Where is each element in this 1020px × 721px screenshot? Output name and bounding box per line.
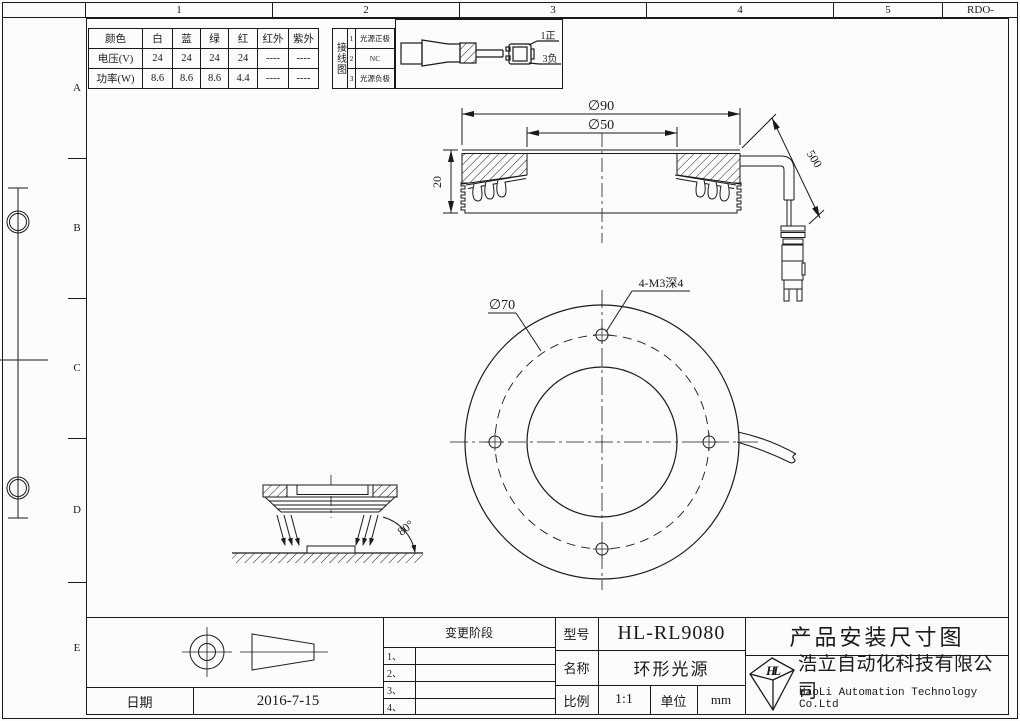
top-view: ∅70 4-M3深4 [440,270,820,600]
projection-symbol [180,626,330,678]
zone-top-2: 2 [273,2,460,17]
ring-body-side [263,485,397,512]
heatsink-fin [720,184,729,201]
connector-knurl [460,43,476,63]
company-name-en: HaoLi Automation Technology Co.Ltd [799,691,1010,707]
spec-value: ---- [289,69,319,89]
spec-col-red: 红 [229,29,258,49]
cable-run [740,156,794,226]
binding-marks [0,180,60,525]
mount-hole [700,433,718,451]
leader-mount-holes [606,291,690,332]
zone-tick [68,158,86,159]
dim-beam-angle: 80° [395,517,417,538]
change-stage-header: 变更阶段 [383,617,555,647]
target-object [307,546,355,553]
zone-tick [68,298,86,299]
spec-col-blue: 蓝 [173,29,201,49]
zone-top-blank [2,2,86,17]
ring-body-section [461,150,741,213]
wiring-pin-row: 2 NC [348,49,394,69]
model-label: 型号 [555,617,598,650]
dim-cable-length: 500 [804,148,825,171]
spec-header-color: 颜色 [89,29,143,49]
name-label: 名称 [555,650,598,685]
side-view: 80° [225,455,435,575]
connector-flange [401,43,422,64]
zone-left-B: B [69,220,85,236]
logo-monogram: HL [765,663,781,678]
date-label: 日期 [86,687,193,715]
wiring-pin-row: 1 光源正极 [348,29,394,49]
table-row: 功率(W) 8.6 8.6 8.6 4.4 ---- ---- [89,69,319,89]
drawing-sheet: 1 2 3 4 5 RDO- A B C D E 颜色 白 蓝 绿 红 红 [0,0,1020,721]
wiring-box: 接线图 1 光源正极 2 NC 3 光源负极 [332,28,395,89]
zone-left-E: E [69,640,85,656]
light-rays [277,515,378,545]
zone-top-3: 3 [460,2,647,17]
dim-bolt-circle: ∅70 [489,298,515,313]
company-logo: HL [746,656,798,713]
connector-drawing: 1正 3负 [396,20,562,88]
pin-label: NC [356,49,394,68]
pin-number: 2 [348,49,356,68]
dim-inner-diameter: ∅50 [588,118,614,133]
spec-value: 8.6 [201,69,229,89]
unit-value: mm [697,685,745,715]
pin-label: 光源正极 [356,29,394,48]
leader-bolt-circle [488,313,541,351]
change-row-3: 3、 [384,681,417,698]
table-row: 颜色 白 蓝 绿 红 红外 紫外 [89,29,319,49]
spec-table: 颜色 白 蓝 绿 红 红外 紫外 电压(V) 24 24 24 24 ---- … [88,28,319,89]
name-value: 环形光源 [598,650,745,685]
zone-top-1: 1 [86,2,273,17]
plug-pin1-label: 1正 [541,31,556,42]
wiring-pin-list: 1 光源正极 2 NC 3 光源负极 [348,29,394,88]
spec-value: 24 [201,49,229,69]
zone-strip-top: 1 2 3 4 5 RDO- [2,2,1018,18]
ground-hatch [232,553,423,563]
spec-col-uv: 紫外 [289,29,319,49]
zone-top-5: 5 [834,2,943,17]
spec-value: 8.6 [143,69,173,89]
zone-tick [68,438,86,439]
pin-number: 1 [348,29,356,48]
heatsink-fin [696,180,705,197]
scale-label: 比例 [555,685,598,715]
spec-value: 24 [143,49,173,69]
table-row: 电压(V) 24 24 24 24 ---- ---- [89,49,319,69]
spec-value: 24 [229,49,258,69]
spec-value: ---- [258,69,289,89]
zone-tick [68,582,86,583]
dim-mounting-holes: 4-M3深4 [639,276,684,290]
change-row-4: 4、 [384,698,417,715]
heatsink-fin [473,184,482,201]
spec-col-white: 白 [143,29,173,49]
wiring-pin-row: 3 光源负极 [348,69,394,88]
spec-col-green: 绿 [201,29,229,49]
ribbed-wall-right [734,183,741,213]
heatsink-fin [485,182,494,199]
zone-left-A: A [69,80,85,96]
spec-value: ---- [289,49,319,69]
ribbed-wall-left [461,183,468,213]
plug-face [506,44,534,64]
spec-value: 8.6 [173,69,201,89]
scale-value: 1:1 [598,685,650,715]
mount-hole [593,540,611,558]
connector-barrel [422,40,460,66]
plug-pin3-label: 3负 [543,52,558,65]
wiring-title: 接线图 [333,29,348,88]
change-row-2: 2、 [384,664,417,681]
spec-value: 4.4 [229,69,258,89]
spec-value: 24 [173,49,201,69]
zone-left-C: C [69,360,85,376]
zone-left-D: D [69,502,85,518]
date-value: 2016-7-15 [193,687,383,715]
pin-label: 光源负极 [356,69,394,88]
dim-height: 20 [430,176,444,188]
spec-col-ir: 红外 [258,29,289,49]
heatsink-fin [497,180,506,197]
cable-exit [737,432,796,463]
company-name-cn: 浩立自动化科技有限公司 [798,662,1009,690]
spec-row-voltage: 电压(V) [89,49,143,69]
zone-top-4: 4 [647,2,834,17]
unit-label: 单位 [650,685,697,715]
model-value: HL-RL9080 [598,617,745,650]
spec-value: ---- [258,49,289,69]
change-row-1: 1、 [384,647,417,664]
spec-row-power: 功率(W) [89,69,143,89]
zone-corner-label: RDO- [943,2,1018,17]
dim-outer-diameter: ∅90 [588,99,614,114]
mount-hole [486,433,504,451]
heatsink-fin [708,182,717,199]
pin-number: 3 [348,69,356,88]
